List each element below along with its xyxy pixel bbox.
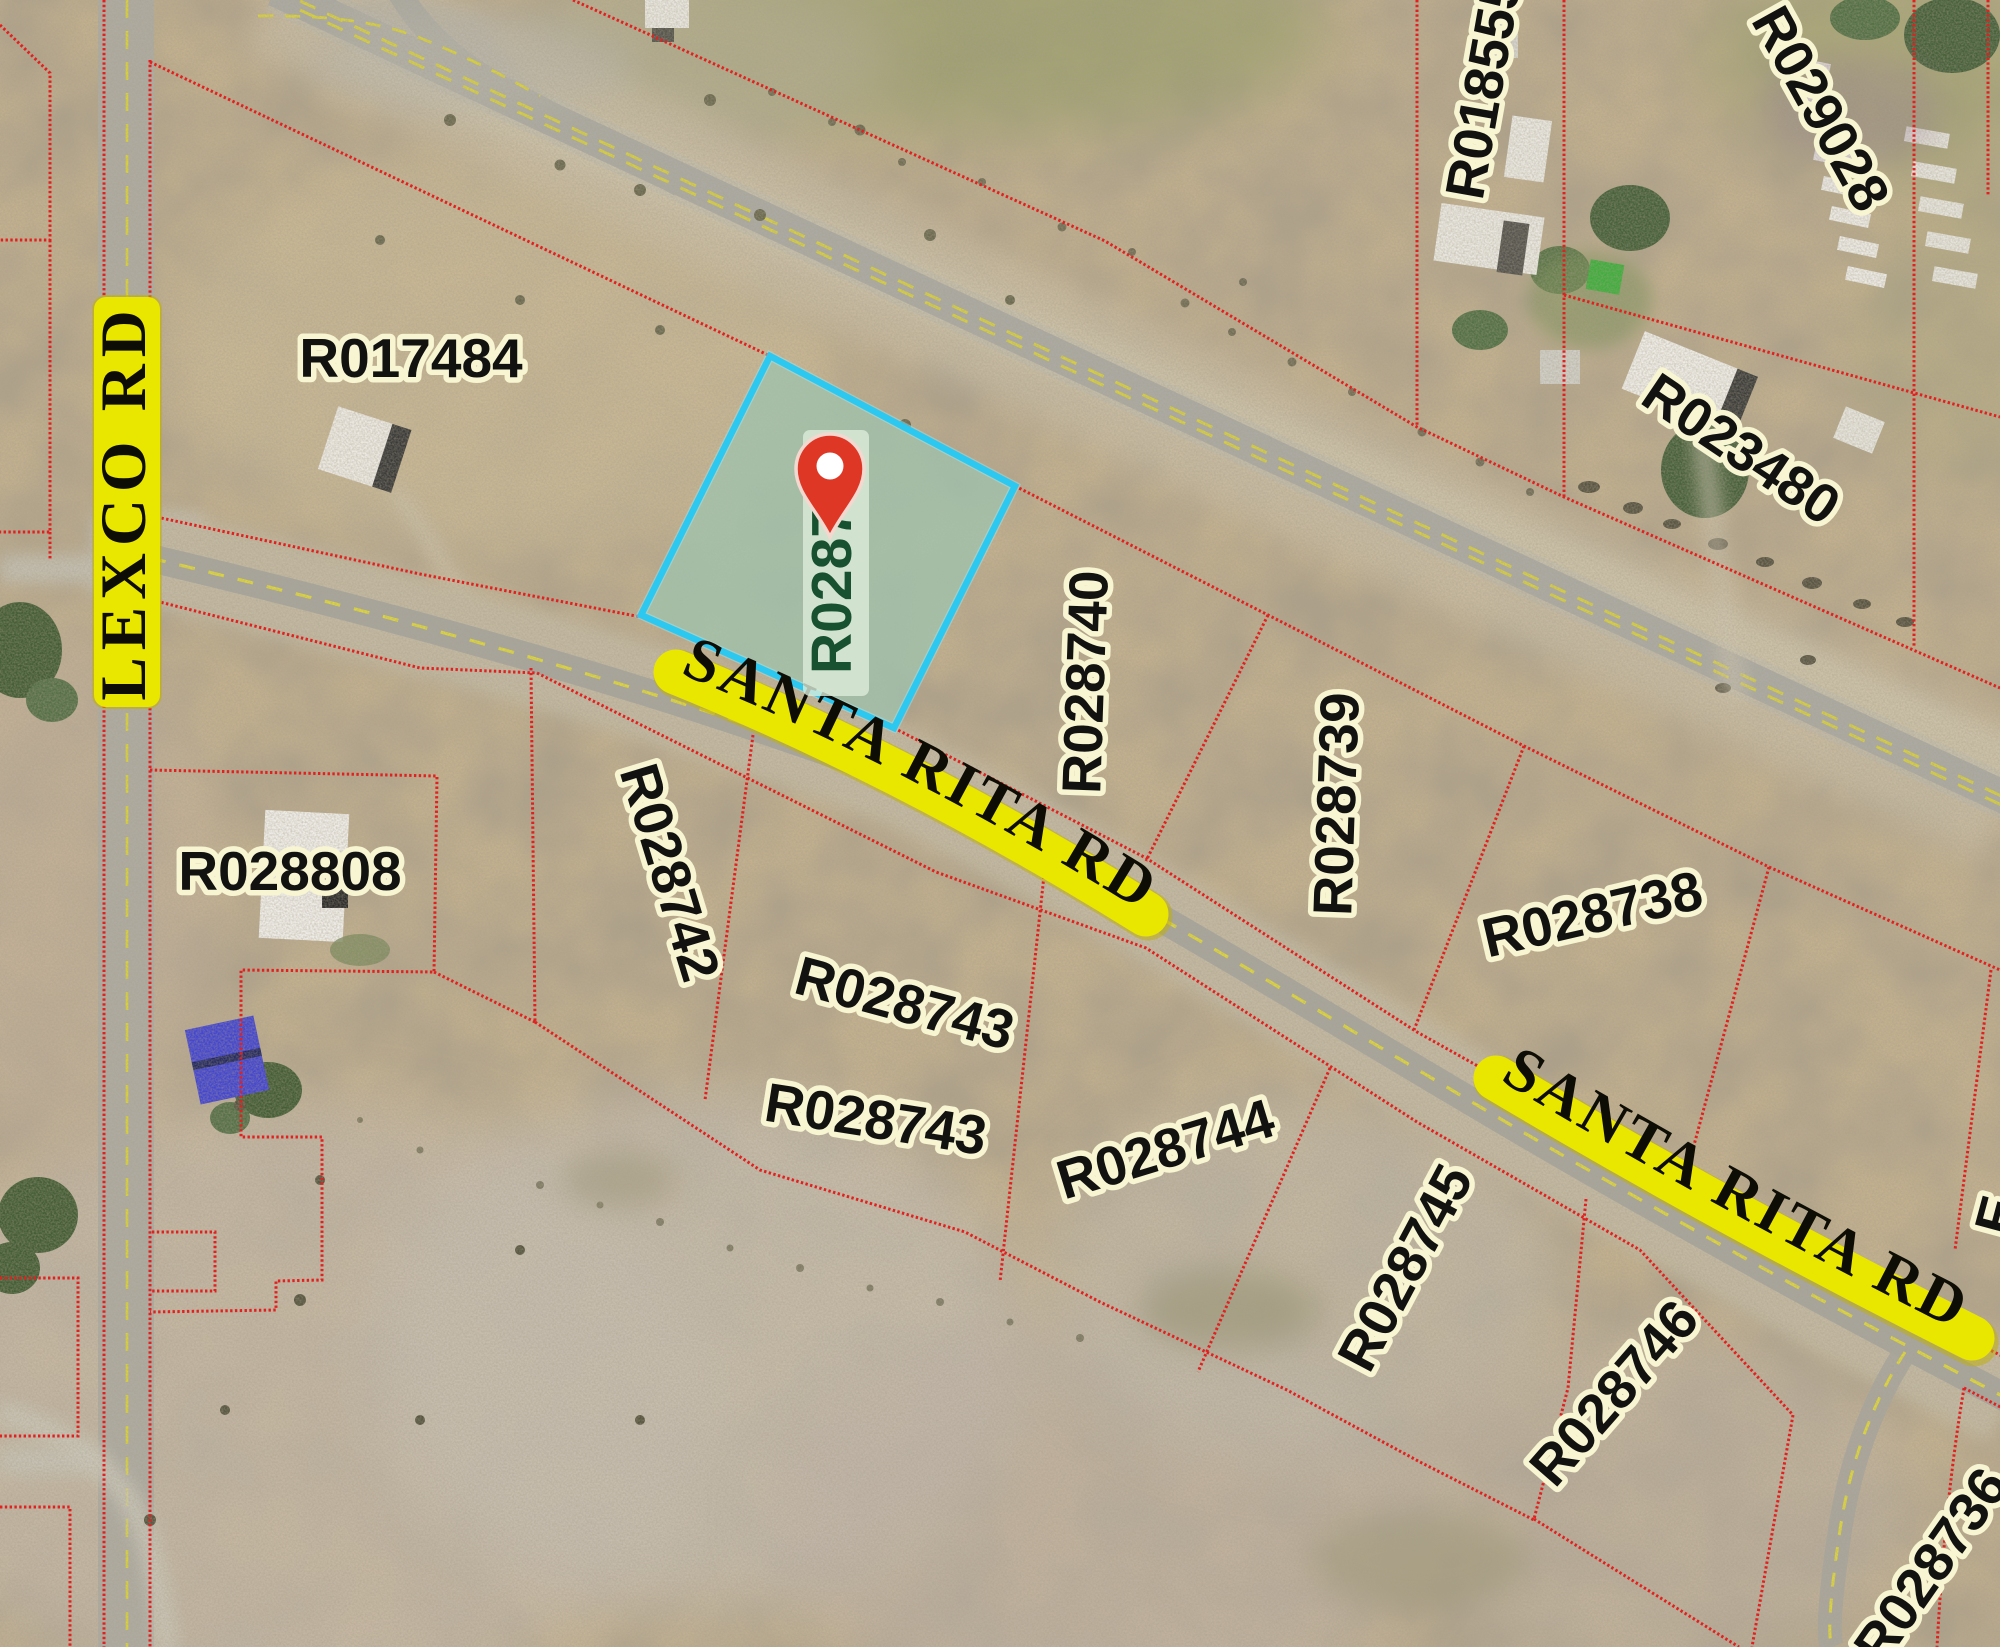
svg-text:R028808: R028808 — [178, 840, 401, 902]
svg-text:R028740: R028740 — [1050, 569, 1120, 794]
svg-text:R028739: R028739 — [1301, 691, 1371, 916]
svg-text:LEXCO RD: LEXCO RD — [88, 303, 160, 700]
svg-text:R017484: R017484 — [299, 327, 523, 389]
